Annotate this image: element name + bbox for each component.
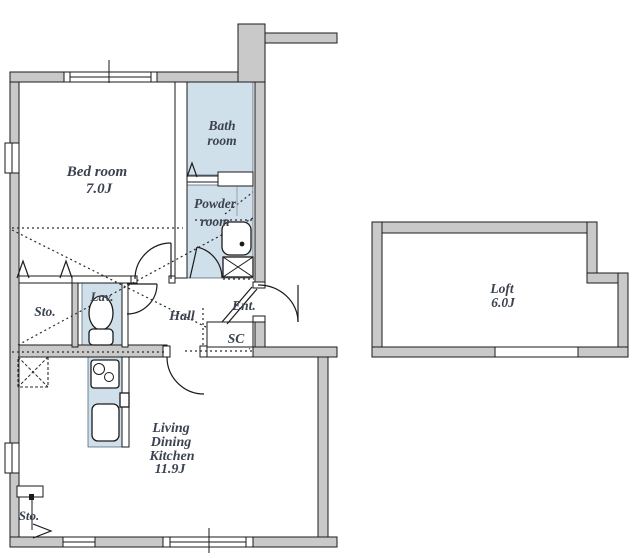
ldk-door-cap-left (163, 346, 170, 357)
entrance-label: Ent. (231, 298, 256, 313)
loft-bottom-opening (495, 347, 578, 357)
ldk-label-line1: Living (151, 421, 189, 436)
floor-plan-svg: Bed room 7.0J Bath room Powder room Lav.… (0, 0, 634, 553)
wall-bedroom-south (72, 276, 137, 283)
kitchen-sink-icon (92, 404, 119, 441)
wall-storage-lav-divider (72, 283, 78, 347)
wall-mid-extension (253, 347, 337, 357)
washing-machine-space-icon (223, 257, 253, 277)
window-top (64, 60, 157, 83)
lavatory-door (127, 284, 157, 314)
storage-bottom-label: Sto. (19, 508, 40, 523)
powder-room-label-line1: Powder (194, 196, 237, 211)
storage-door-swing-mark (33, 524, 51, 538)
wall-hall-south (19, 345, 167, 357)
loft-wall-left (372, 222, 382, 357)
wall-bedroom-south-nib (169, 276, 175, 283)
ldk-door (167, 357, 204, 394)
shoe-closet-band (204, 347, 253, 357)
ldk-label-line4: 11.9J (155, 462, 187, 477)
window-bottom-large (163, 528, 253, 553)
closet-folding-door-mark-2 (60, 261, 72, 278)
bedroom-size-label: 7.0J (86, 181, 113, 197)
loft-wall-top (372, 222, 597, 233)
closet-folding-track (19, 276, 72, 283)
loft-wall-right-lower (618, 273, 628, 357)
wall-right-entrance-lower (255, 322, 265, 347)
bedroom-door-cap-left (131, 276, 137, 283)
floor-plan: Bed room 7.0J Bath room Powder room Lav.… (0, 0, 634, 553)
kitchen-faucet-icon (120, 393, 129, 407)
stove-icon (91, 360, 119, 388)
wall-bedroom-bath-divider (175, 82, 187, 278)
bathroom-label-line1: Bath (207, 118, 235, 133)
wall-ldk-right (318, 357, 328, 547)
lavatory-label: Lav. (90, 289, 114, 304)
ldk-label-line2: Dining (150, 435, 191, 450)
loft-label: Loft (489, 281, 514, 296)
bathroom-label-line2: room (207, 133, 236, 148)
washer-pan-dashed-square (18, 357, 48, 387)
window-left-upper (5, 143, 19, 173)
storage-mid-label: Sto. (34, 304, 55, 319)
wall-top-arm (265, 33, 337, 43)
wall-right-upper (255, 82, 265, 287)
entrance-cap-bottom (253, 316, 265, 322)
window-bottom-small (63, 537, 95, 547)
bedroom-door (135, 243, 171, 279)
powder-room-label-line2: room (200, 214, 229, 229)
wall-top-protrusion (238, 24, 265, 82)
bath-vanity-counter (218, 172, 253, 186)
shoe-closet-label: SC (228, 331, 246, 346)
hall-label: Hall (168, 309, 195, 324)
loft-size-label: 6.0J (491, 295, 516, 310)
window-left-lower (5, 443, 19, 473)
bedroom-label: Bed room (66, 164, 127, 180)
wall-lavatory-east (122, 283, 128, 347)
